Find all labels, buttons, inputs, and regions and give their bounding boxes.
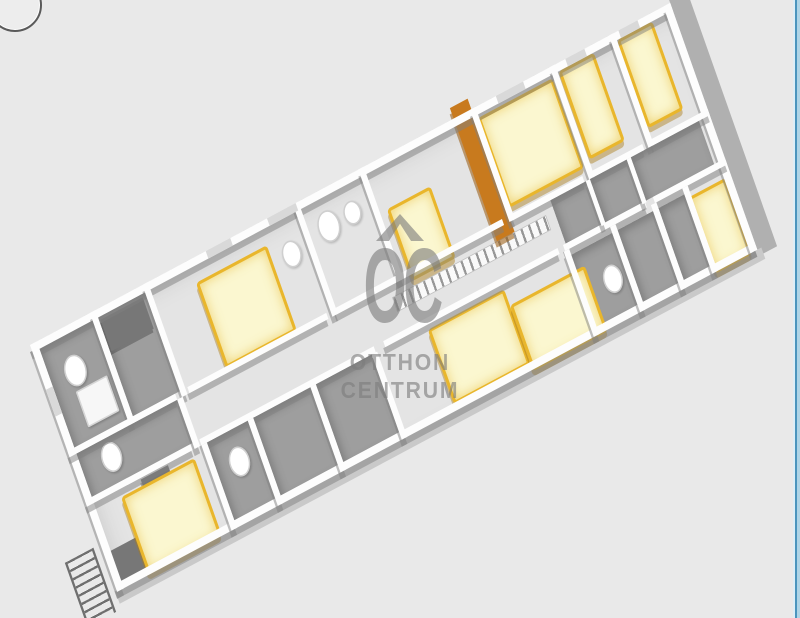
right-border-line <box>793 0 800 618</box>
floorplan-scene <box>30 3 757 592</box>
floorplan-render-canvas: OC OTTHON CENTRUM <box>0 0 800 618</box>
compass-icon <box>0 0 42 32</box>
